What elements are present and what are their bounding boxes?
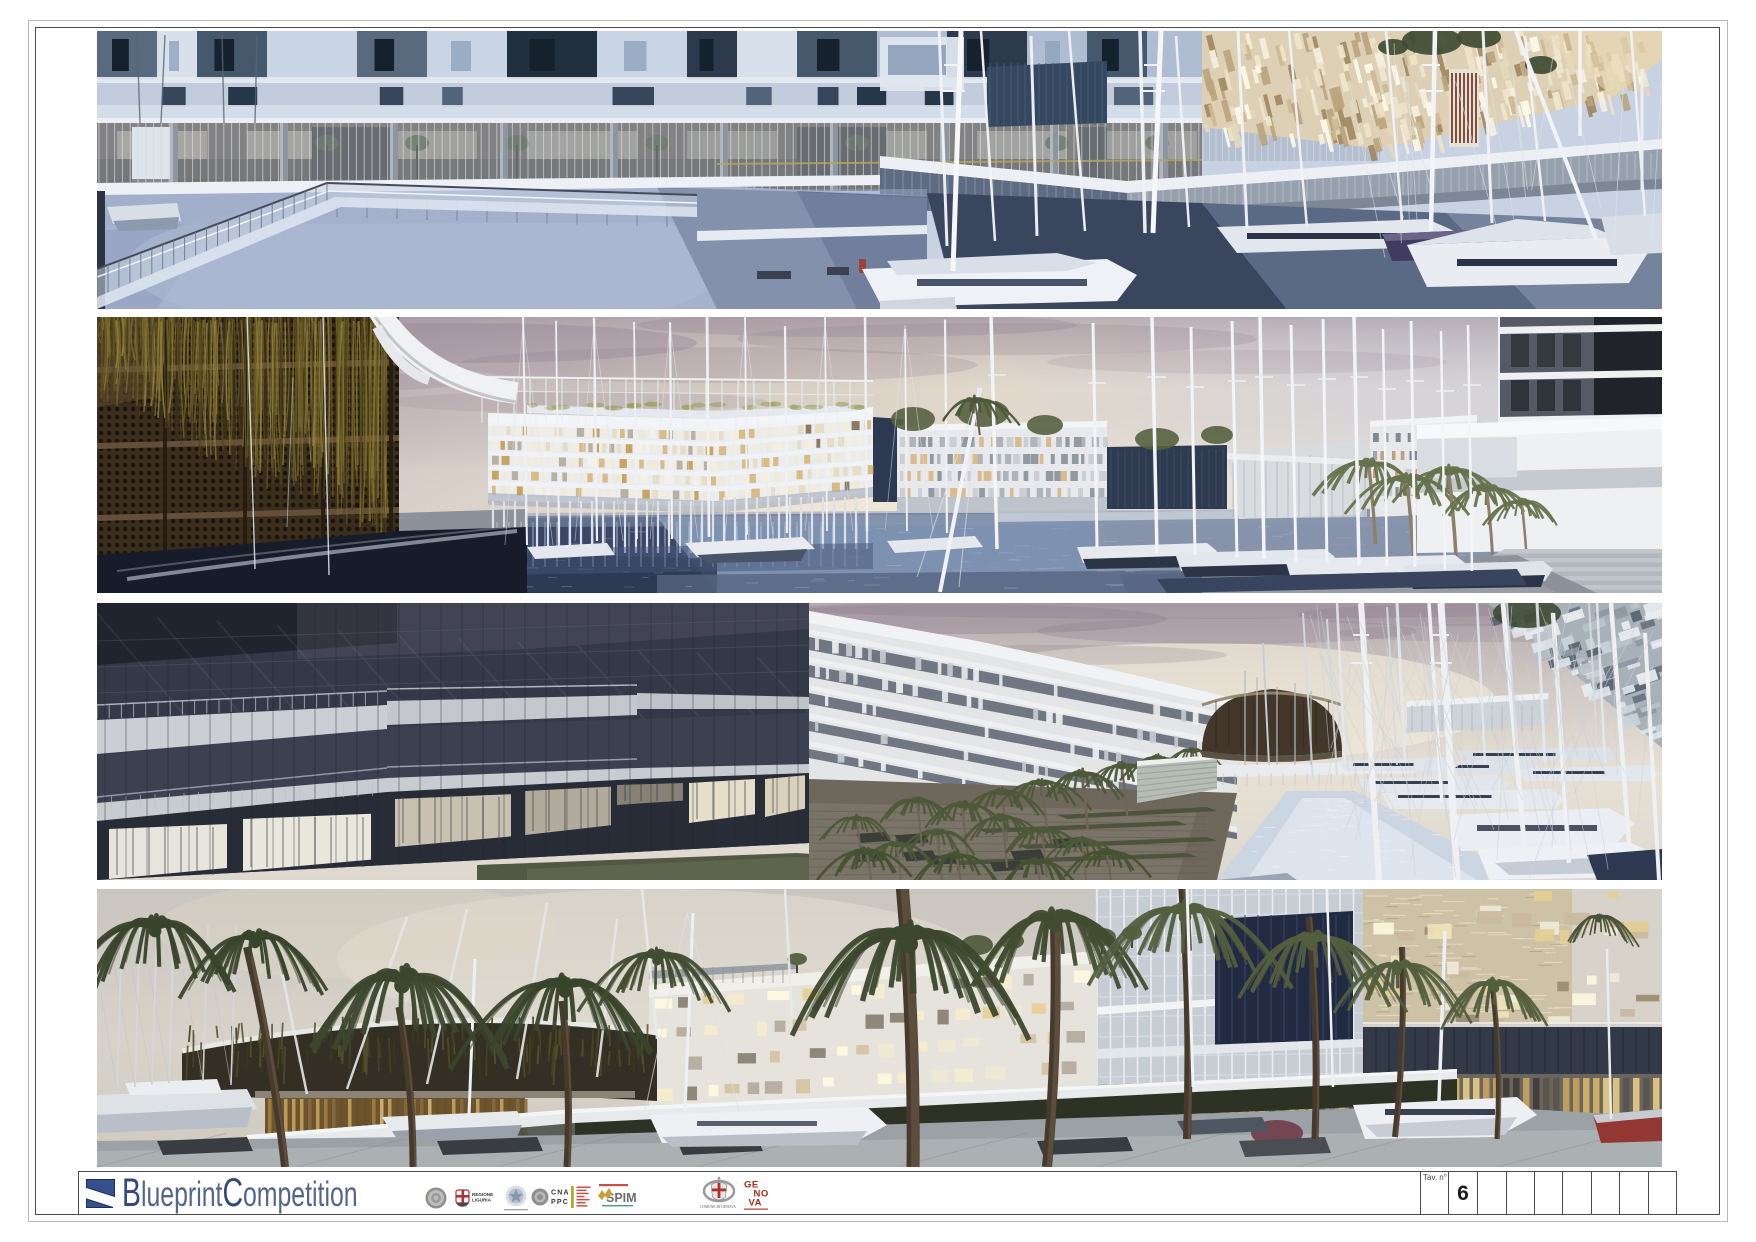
svg-text:LIGURIA: LIGURIA: [472, 1198, 492, 1203]
svg-text:PPC: PPC: [551, 1199, 569, 1206]
svg-text:CNA: CNA: [551, 1190, 570, 1197]
svg-text:VA: VA: [749, 1198, 763, 1209]
svg-text:COMUNE DI GENOVA: COMUNE DI GENOVA: [700, 1205, 736, 1209]
svg-text:REGIONE: REGIONE: [472, 1192, 493, 1197]
